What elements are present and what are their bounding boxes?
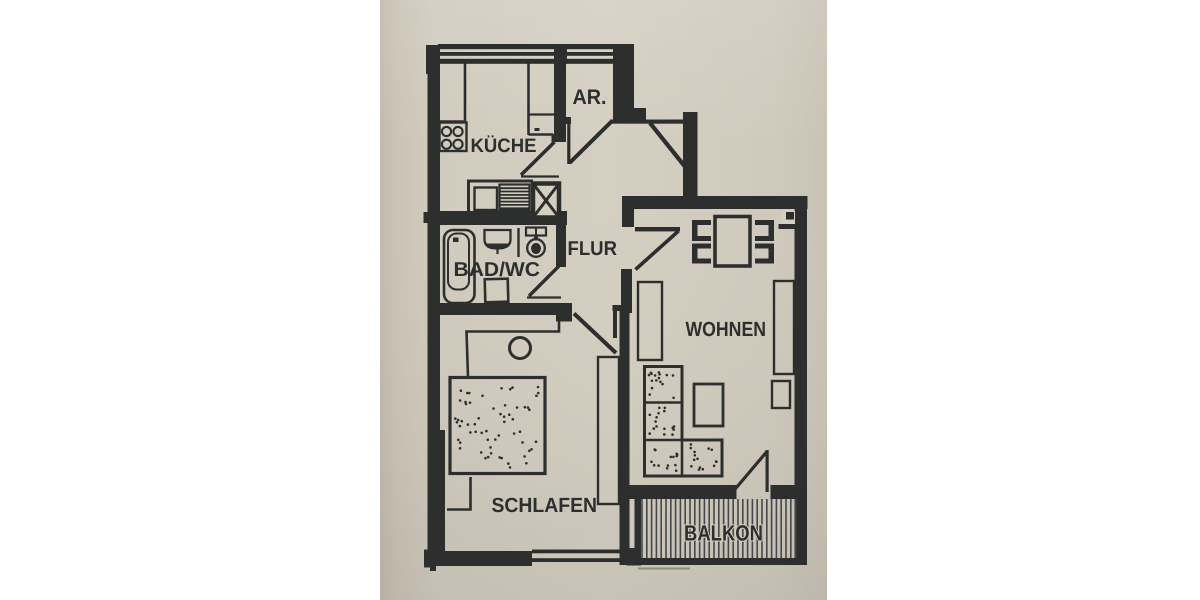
svg-text:BALKON: BALKON: [684, 521, 763, 546]
svg-text:AR.: AR.: [573, 86, 607, 109]
svg-text:FLUR: FLUR: [568, 238, 618, 260]
svg-text:BAD/WC: BAD/WC: [454, 259, 541, 281]
svg-text:SCHLAFEN: SCHLAFEN: [492, 494, 598, 517]
svg-text:WOHNEN: WOHNEN: [686, 318, 767, 341]
svg-text:KÜCHE: KÜCHE: [471, 135, 537, 157]
